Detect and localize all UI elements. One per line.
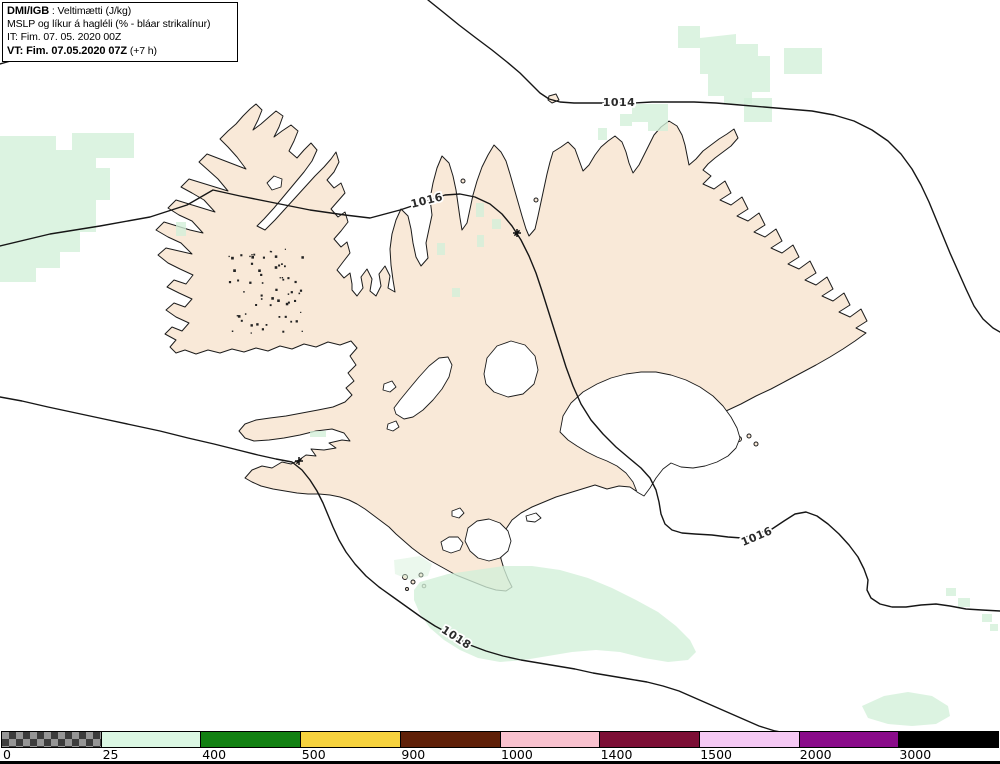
speckle — [245, 313, 247, 315]
speckle — [249, 256, 250, 257]
speckle — [270, 304, 272, 306]
speckle — [233, 269, 236, 272]
contour-label: 1016 — [739, 524, 774, 549]
speckle — [231, 257, 234, 260]
speckle — [296, 320, 298, 322]
speckle — [299, 293, 301, 295]
speckle — [275, 266, 278, 269]
speckle — [260, 274, 262, 276]
speckle — [270, 251, 272, 253]
info-line-title: DMI/IGB : Veltimætti (J/kg) — [7, 5, 233, 18]
colorbar-tick: 1500 — [700, 747, 732, 762]
speckle — [282, 331, 284, 333]
speckle — [229, 281, 231, 283]
colorbar-tick: 0 — [3, 747, 11, 762]
speckle — [282, 279, 284, 281]
speckle — [271, 297, 274, 300]
colorbar-tick: 900 — [401, 747, 425, 762]
colorbar-segment — [500, 732, 600, 747]
speckle — [237, 315, 238, 316]
colorbar-tick: 500 — [302, 747, 326, 762]
speckle — [232, 331, 234, 333]
speckle — [288, 293, 290, 295]
colorbar-segment — [2, 732, 101, 747]
speckle — [278, 265, 280, 267]
speckle — [237, 280, 239, 282]
model-name: DMI/IGB — [7, 5, 49, 17]
colorbar-segment — [599, 732, 699, 747]
colorbar-segment — [300, 732, 400, 747]
speckle — [300, 290, 302, 292]
speckle — [285, 249, 286, 250]
colorbar-tick: 25 — [103, 747, 119, 762]
speckle — [294, 300, 296, 302]
speckle — [240, 254, 242, 256]
speckle — [256, 323, 258, 325]
speckle — [275, 255, 278, 258]
speckle — [251, 324, 253, 326]
weather-map-stage: 1014101610161018 DMI/IGB : Veltimætti (J… — [0, 0, 1000, 764]
speckle — [285, 316, 287, 318]
speckle — [284, 265, 286, 267]
field-name: Veltimætti (J/kg) — [58, 5, 132, 17]
speckle — [251, 332, 252, 333]
speckle — [243, 291, 245, 293]
speckle — [238, 315, 241, 318]
colorbar-tick: 3000 — [899, 747, 931, 762]
colorbar-segment — [699, 732, 799, 747]
colorbar-segment — [898, 732, 998, 747]
speckle — [251, 254, 252, 255]
speckle — [291, 291, 293, 293]
speckle — [275, 289, 277, 291]
colorbar-ticks: 02540050090010001400150020003000 — [0, 747, 1000, 761]
speckle — [281, 263, 283, 265]
speckle — [300, 312, 301, 313]
speckle — [295, 281, 297, 283]
colorbar-segment — [200, 732, 300, 747]
speckle — [261, 295, 263, 297]
speckle — [302, 331, 303, 332]
speckle — [288, 302, 290, 304]
speckle — [301, 256, 304, 259]
speckle — [258, 269, 261, 272]
iceland-weather-map: 1014101610161018 — [0, 0, 1000, 764]
speckle — [229, 256, 230, 257]
speckle — [262, 282, 264, 284]
speckle — [253, 254, 255, 256]
contour-label: 1014 — [603, 96, 636, 109]
speckle — [263, 257, 265, 259]
colorbar-tick: 400 — [202, 747, 226, 762]
info-line-valid-time: VT: Fim. 07.05.2020 07Z (+7 h) — [7, 45, 233, 58]
colorbar-segment — [400, 732, 500, 747]
colorbar-segment — [101, 732, 201, 747]
info-line-init-time: IT: Fim. 07. 05. 2020 00Z — [7, 31, 233, 44]
speckle — [241, 320, 243, 322]
speckle — [249, 282, 251, 284]
speckle — [279, 316, 281, 318]
colorbar-tick: 1000 — [501, 747, 533, 762]
info-line-field2: MSLP og líkur á hagléli (% - bláar strik… — [7, 18, 233, 31]
speckle — [280, 277, 281, 278]
speckle — [277, 299, 280, 302]
speckle — [262, 328, 264, 330]
colorbar-tick: 2000 — [800, 747, 832, 762]
colorbar-band — [1, 731, 999, 748]
speckle — [251, 263, 253, 265]
colorbar-segment — [799, 732, 899, 747]
speckle — [287, 277, 289, 279]
colorbar-tick: 1400 — [601, 747, 633, 762]
speckle — [255, 304, 257, 306]
speckle — [266, 324, 268, 326]
speckle — [282, 277, 283, 278]
speckle — [251, 256, 254, 259]
info-box: DMI/IGB : Veltimætti (J/kg) MSLP og líku… — [2, 2, 238, 62]
speckle — [261, 298, 263, 300]
speckle — [290, 321, 292, 323]
